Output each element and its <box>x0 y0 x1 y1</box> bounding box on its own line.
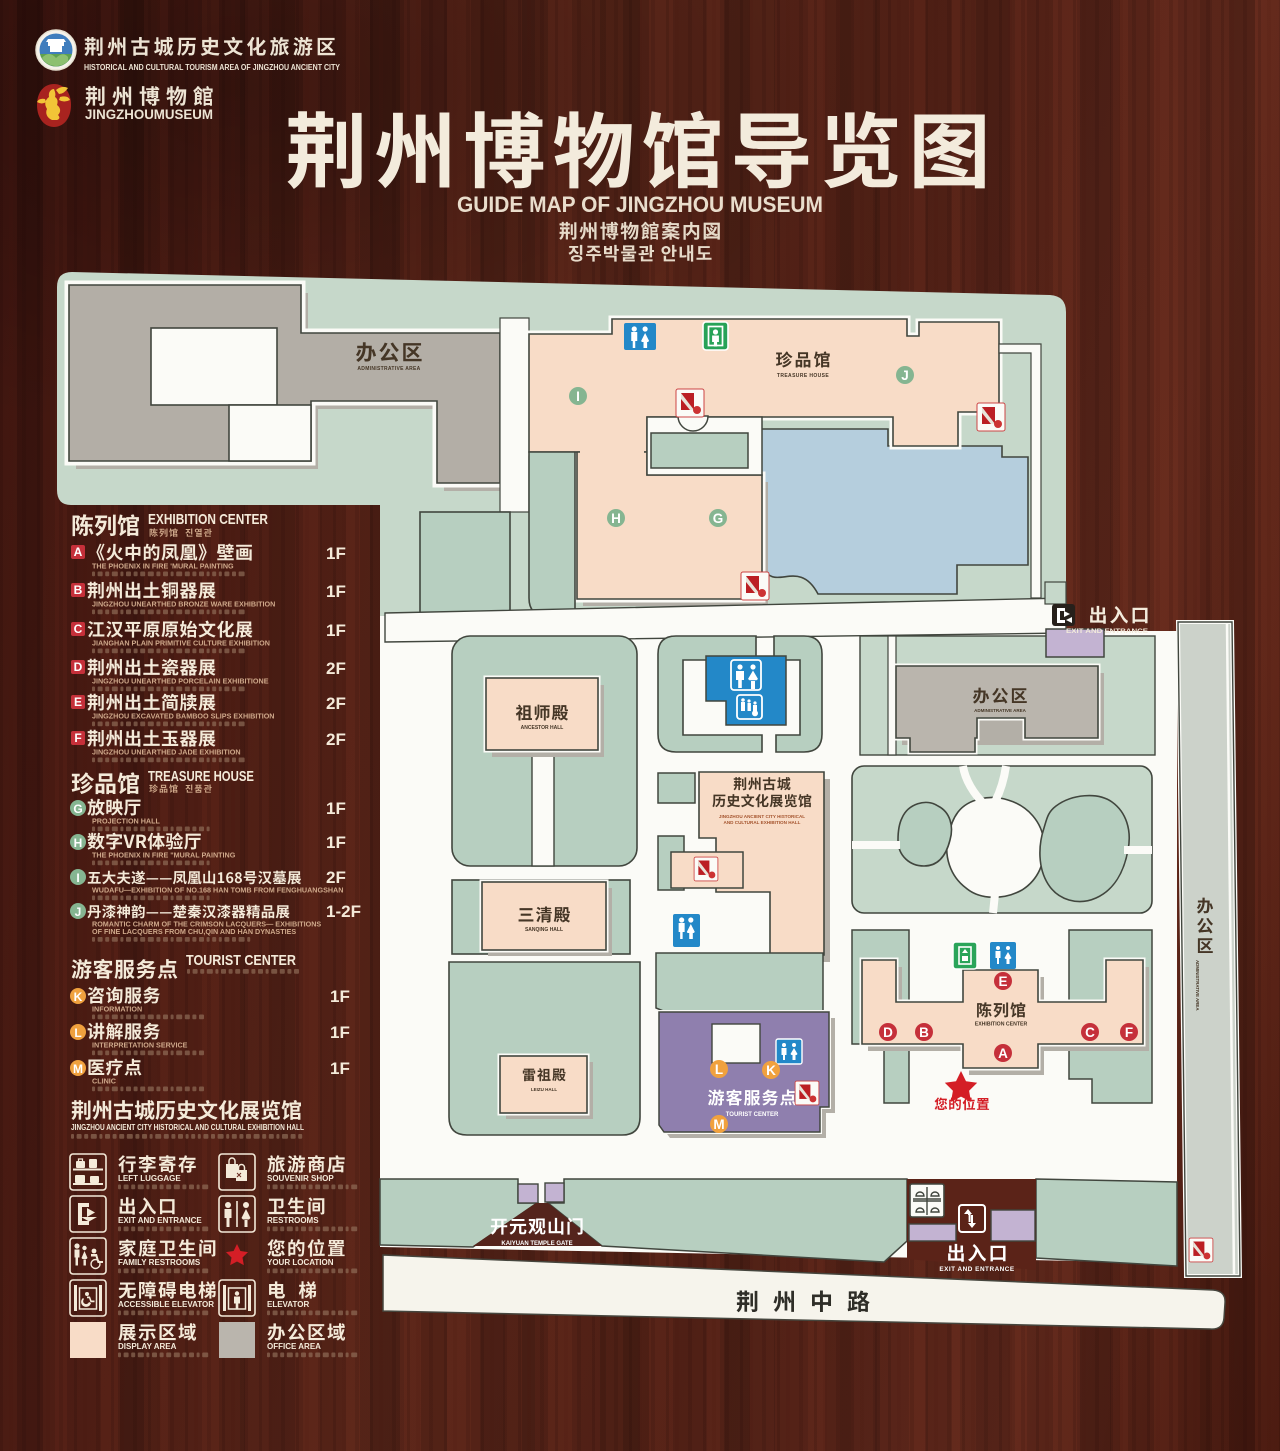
svg-text:JINGZHOU ANCIENT CITY HISTORIC: JINGZHOU ANCIENT CITY HISTORICAL <box>719 814 805 819</box>
svg-text:C: C <box>1085 1025 1095 1040</box>
svg-text:INFORMATION: INFORMATION <box>92 1005 142 1014</box>
svg-text:ADMINISTRATIVE AREA: ADMINISTRATIVE AREA <box>357 366 420 372</box>
svg-text:JINGZHOU ANCIENT CITY HISTORIC: JINGZHOU ANCIENT CITY HISTORICAL AND CUL… <box>71 1122 304 1132</box>
svg-text:LEFT LUGGAGE: LEFT LUGGAGE <box>118 1174 181 1183</box>
svg-text:D: D <box>883 1025 893 1040</box>
svg-text:B: B <box>74 583 83 597</box>
svg-text:M: M <box>713 1117 724 1132</box>
svg-text:THE PHOENIX IN FIRE 'MURAL PAI: THE PHOENIX IN FIRE 'MURAL PAINTING <box>92 562 234 571</box>
svg-text:K: K <box>766 1063 776 1078</box>
svg-text:K: K <box>74 990 83 1004</box>
svg-text:B: B <box>919 1025 929 1040</box>
svg-text:G: G <box>713 511 724 526</box>
svg-text:TREASURE HOUSE: TREASURE HOUSE <box>777 373 830 379</box>
svg-text:AND CULTURAL EXHIBITION HALL: AND CULTURAL EXHIBITION HALL <box>724 820 801 825</box>
svg-text:TOURIST CENTER: TOURIST CENTER <box>186 952 296 969</box>
svg-text:1F: 1F <box>326 833 346 852</box>
svg-text:D: D <box>74 660 83 674</box>
svg-text:SANQING HALL: SANQING HALL <box>525 927 563 933</box>
svg-text:JINGZHOU UNEARTHED BRONZE WARE: JINGZHOU UNEARTHED BRONZE WARE EXHIBITIO… <box>92 600 275 609</box>
svg-text:G: G <box>73 802 82 816</box>
svg-text:E: E <box>74 695 82 709</box>
svg-text:SOUVENIR SHOP: SOUVENIR SHOP <box>267 1174 334 1183</box>
svg-text:E: E <box>998 974 1007 989</box>
svg-text:1F: 1F <box>326 544 346 563</box>
svg-text:JINGZHOU EXCAVATED BAMBOO SLIP: JINGZHOU EXCAVATED BAMBOO SLIPS EXHIBITI… <box>92 712 275 721</box>
svg-text:C: C <box>74 622 83 636</box>
svg-text:1F: 1F <box>330 1059 350 1078</box>
svg-text:J: J <box>75 905 82 919</box>
svg-text:EXIT AND ENTRANCE: EXIT AND ENTRANCE <box>118 1216 202 1225</box>
svg-text:ANCESTOR HALL: ANCESTOR HALL <box>521 725 564 731</box>
svg-text:1F: 1F <box>326 621 346 640</box>
svg-text:OFFICE AREA: OFFICE AREA <box>267 1342 321 1351</box>
svg-text:LEIZU HALL: LEIZU HALL <box>531 1087 557 1092</box>
svg-text:JINGZHOU UNEARTHED JADE EXHIBI: JINGZHOU UNEARTHED JADE EXHIBITION <box>92 748 241 757</box>
svg-text:A: A <box>74 545 83 559</box>
svg-text:A: A <box>998 1046 1008 1061</box>
svg-text:OF FINE LACQUERS FROM CHU,QIN: OF FINE LACQUERS FROM CHU,QIN AND HAN DY… <box>92 927 296 936</box>
svg-text:I: I <box>76 871 79 885</box>
svg-text:1F: 1F <box>326 799 346 818</box>
svg-text:2F: 2F <box>326 659 346 678</box>
svg-text:JIANGHAN PLAIN PRIMITIVE CULTU: JIANGHAN PLAIN PRIMITIVE CULTURE EXHIBIT… <box>92 639 270 648</box>
svg-text:2F: 2F <box>326 868 346 887</box>
svg-text:2F: 2F <box>326 694 346 713</box>
svg-text:ELEVATOR: ELEVATOR <box>267 1300 309 1309</box>
svg-text:ACCESSIBLE ELEVATOR: ACCESSIBLE ELEVATOR <box>118 1300 214 1309</box>
svg-text:ADMINISTRATIVE AREA: ADMINISTRATIVE AREA <box>1195 960 1200 1011</box>
svg-text:JINGZHOU UNEARTHED PORCELAIN E: JINGZHOU UNEARTHED PORCELAIN EXHIBITIONE <box>92 677 269 686</box>
svg-text:1F: 1F <box>330 1023 350 1042</box>
svg-text:TREASURE HOUSE: TREASURE HOUSE <box>148 768 254 785</box>
svg-text:TOURIST CENTER: TOURIST CENTER <box>726 1112 779 1118</box>
svg-text:PROJECTION HALL: PROJECTION HALL <box>92 817 160 826</box>
svg-text:DISPLAY AREA: DISPLAY AREA <box>118 1342 177 1351</box>
svg-text:THE PHOENIX IN FIRE "MURAL PAI: THE PHOENIX IN FIRE "MURAL PAINTING <box>92 851 236 860</box>
svg-text:F: F <box>1125 1025 1133 1040</box>
svg-text:1F: 1F <box>330 987 350 1006</box>
svg-text:1-2F: 1-2F <box>326 902 361 921</box>
svg-text:EXHIBITION CENTER: EXHIBITION CENTER <box>148 511 268 528</box>
svg-text:EXHIBITION CENTER: EXHIBITION CENTER <box>975 1022 1028 1028</box>
svg-text:GUIDE MAP OF JINGZHOU MUSEUM: GUIDE MAP OF JINGZHOU MUSEUM <box>457 192 823 217</box>
svg-text:EXIT AND ENTRANCE: EXIT AND ENTRANCE <box>1066 628 1149 635</box>
svg-text:HISTORICAL AND CULTURAL TOURIS: HISTORICAL AND CULTURAL TOURISM AREA OF … <box>84 63 341 72</box>
svg-text:2F: 2F <box>326 730 346 749</box>
svg-text:EXIT AND ENTRANCE: EXIT AND ENTRANCE <box>939 1266 1015 1273</box>
svg-text:JINGZHOUMUSEUM: JINGZHOUMUSEUM <box>85 106 213 122</box>
svg-text:RESTROOMS: RESTROOMS <box>267 1216 319 1225</box>
svg-text:F: F <box>74 731 81 745</box>
svg-text:1F: 1F <box>326 582 346 601</box>
svg-text:WUDAFU—EXHIBITION OF NO.168 HA: WUDAFU—EXHIBITION OF NO.168 HAN TOMB FRO… <box>92 886 343 895</box>
svg-text:ADMINISTRATIVE AREA: ADMINISTRATIVE AREA <box>974 708 1027 713</box>
svg-text:L: L <box>715 1062 723 1077</box>
svg-text:FAMILY RESTROOMS: FAMILY RESTROOMS <box>118 1258 201 1267</box>
svg-text:H: H <box>74 836 83 850</box>
svg-text:L: L <box>74 1026 81 1040</box>
svg-text:CLINIC: CLINIC <box>92 1077 116 1086</box>
svg-text:INTERPRETATION SERVICE: INTERPRETATION SERVICE <box>92 1041 188 1050</box>
svg-text:H: H <box>611 511 621 526</box>
svg-text:KAIYUAN TEMPLE GATE: KAIYUAN TEMPLE GATE <box>501 1241 572 1247</box>
svg-text:I: I <box>576 389 580 404</box>
svg-text:J: J <box>901 368 909 383</box>
svg-text:YOUR LOCATION: YOUR LOCATION <box>267 1258 334 1267</box>
svg-text:M: M <box>73 1062 83 1076</box>
